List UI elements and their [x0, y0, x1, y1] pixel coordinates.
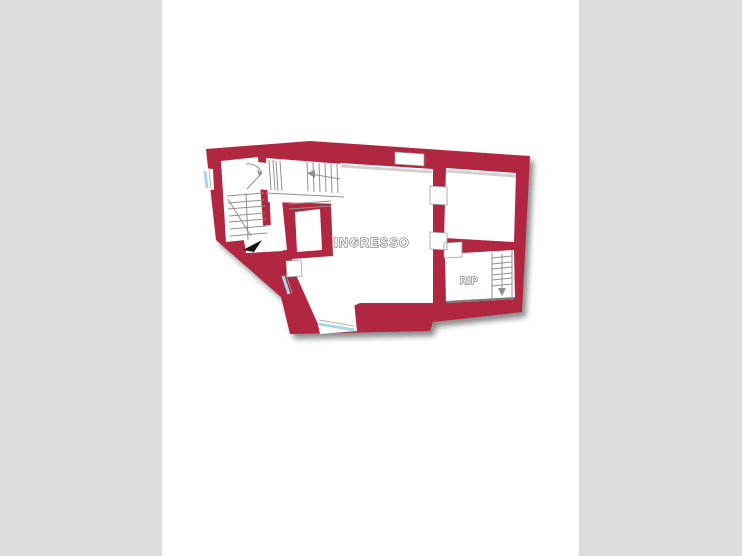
door-gap-stairwell [256, 162, 268, 190]
door-gap-right-room-upper [430, 186, 447, 205]
ingresso-label: INGRESSO [334, 236, 410, 250]
letterbox-left [0, 0, 162, 556]
floor-plan-svg: INGRESSO RIP [0, 0, 742, 556]
rip-label: RIP [460, 276, 478, 287]
screenshot-canvas: INGRESSO RIP [0, 0, 742, 556]
rip-room [445, 250, 515, 303]
window-marker-left [205, 171, 207, 188]
door-gap-closet [286, 260, 302, 277]
letterbox-right [579, 0, 742, 556]
closet-interior [295, 209, 322, 252]
right-room [444, 168, 516, 242]
